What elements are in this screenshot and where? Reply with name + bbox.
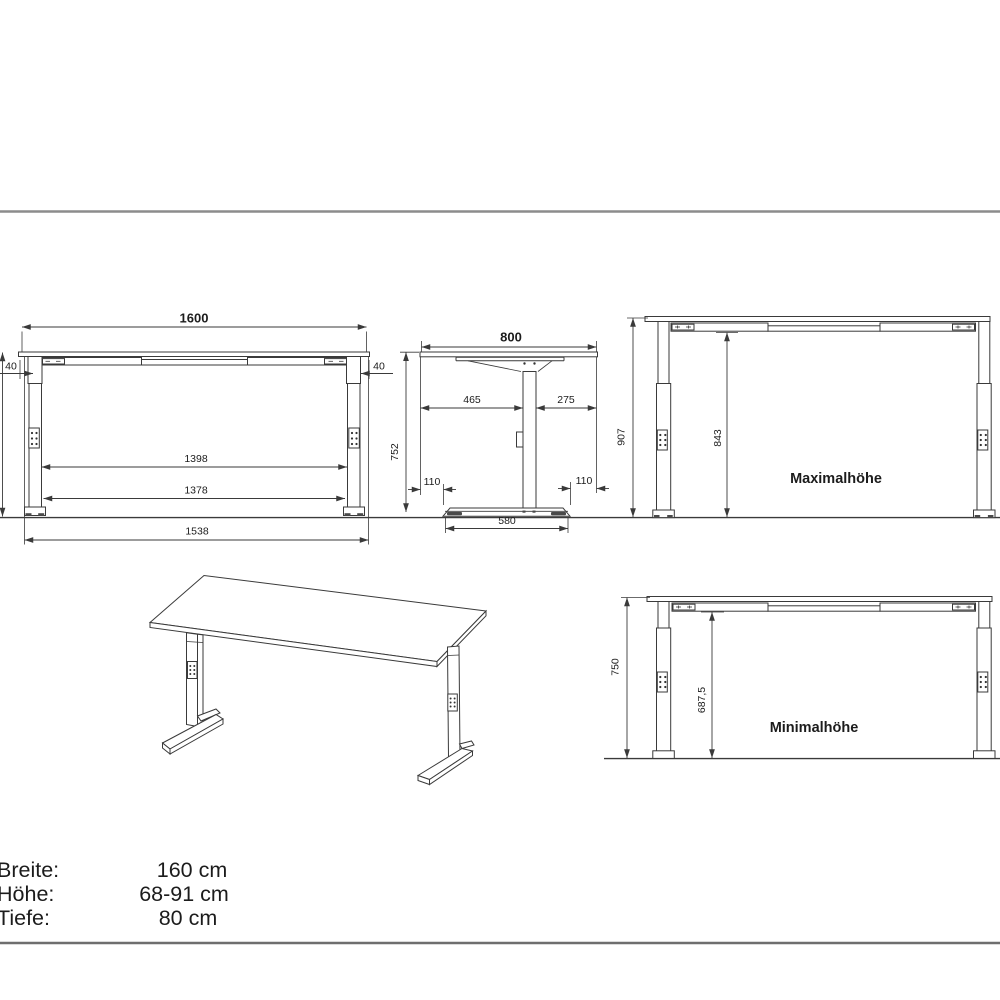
max-height-view: 907 843 Maximalhöhe (616, 317, 996, 518)
dim-front-height: 752 (0, 427, 1, 445)
dim-max-total-height: 907 (616, 428, 628, 446)
min-tabletop (647, 597, 992, 602)
dim-foot-inset-right: 110 (576, 475, 593, 487)
dim-max-frame-height: 843 (712, 429, 724, 447)
dim-overhang-left: 40 (5, 361, 17, 373)
min-height-label: Minimalhöhe (770, 720, 859, 736)
front-dimensions: 1600 752 40 40 1398 1378 1538 (0, 311, 393, 545)
dim-overhang-right: 40 (373, 361, 385, 373)
dim-min-total-height: 750 (610, 658, 622, 676)
dim-front-offset: 465 (463, 394, 481, 406)
spec-table: Breite: 160 cm Höhe: 68-91 cm Tiefe: 80 … (0, 858, 229, 930)
desk-dimension-drawing: 1600 752 40 40 1398 1378 1538 (0, 0, 1000, 1000)
dim-inner-top: 1398 (184, 453, 208, 465)
min-dimensions: 750 687,5 Minimalhöhe (610, 598, 859, 759)
front-left-control-box (29, 428, 40, 448)
technical-drawing-page: 1600 752 40 40 1398 1378 1538 (0, 0, 1000, 1000)
spec-label-breite: Breite: (0, 858, 59, 882)
max-height-label: Maximalhöhe (790, 471, 882, 487)
side-column (517, 372, 537, 509)
max-right-control-box (978, 430, 988, 450)
perspective-left-control-box (188, 662, 198, 679)
dim-back-offset: 275 (557, 394, 575, 406)
min-frame-rail (672, 603, 976, 611)
spec-label-tiefe: Tiefe: (0, 906, 50, 930)
spec-label-hoehe: Höhe: (0, 882, 54, 906)
min-right-leg (974, 602, 996, 759)
dim-foot-span: 1538 (185, 526, 209, 538)
side-tabletop (420, 352, 598, 357)
max-frame-rail (671, 323, 976, 331)
perspective-right-control-box (448, 694, 458, 711)
spec-value-hoehe: 68-91 cm (139, 882, 229, 906)
front-view: 1600 752 40 40 1398 1378 1538 (0, 311, 393, 545)
dim-depth-800: 800 (500, 330, 522, 345)
dim-width-1600: 1600 (180, 311, 209, 326)
front-right-leg (344, 357, 365, 516)
max-dimensions: 907 843 Maximalhöhe (616, 318, 882, 517)
min-height-view: 750 687,5 Minimalhöhe (610, 597, 996, 759)
dim-inner-bottom: 1378 (184, 485, 208, 497)
dim-min-frame-height: 687,5 (696, 687, 708, 713)
spec-value-tiefe: 80 cm (159, 906, 218, 930)
min-right-control-box (978, 672, 988, 692)
front-frame-rail (42, 358, 348, 366)
perspective-view (150, 576, 486, 785)
max-left-control-box (657, 430, 667, 450)
front-tabletop (19, 352, 370, 357)
side-view: 800 465 275 752 110 110 (389, 330, 609, 534)
max-left-leg (653, 322, 675, 518)
min-left-control-box (657, 672, 667, 692)
dim-foot-inset-left: 110 (424, 476, 441, 488)
side-dimensions: 800 465 275 752 110 110 (389, 330, 609, 534)
dim-foot-length: 580 (498, 515, 516, 527)
front-right-control-box (349, 428, 360, 448)
max-right-leg (974, 322, 996, 518)
side-bracket (456, 357, 564, 371)
perspective-right-leg (418, 646, 474, 785)
front-left-leg (25, 357, 46, 516)
spec-value-breite: 160 cm (157, 858, 228, 882)
dim-side-height: 752 (389, 443, 401, 461)
min-left-leg (653, 602, 675, 759)
perspective-left-leg (163, 633, 224, 754)
max-tabletop (645, 317, 990, 322)
